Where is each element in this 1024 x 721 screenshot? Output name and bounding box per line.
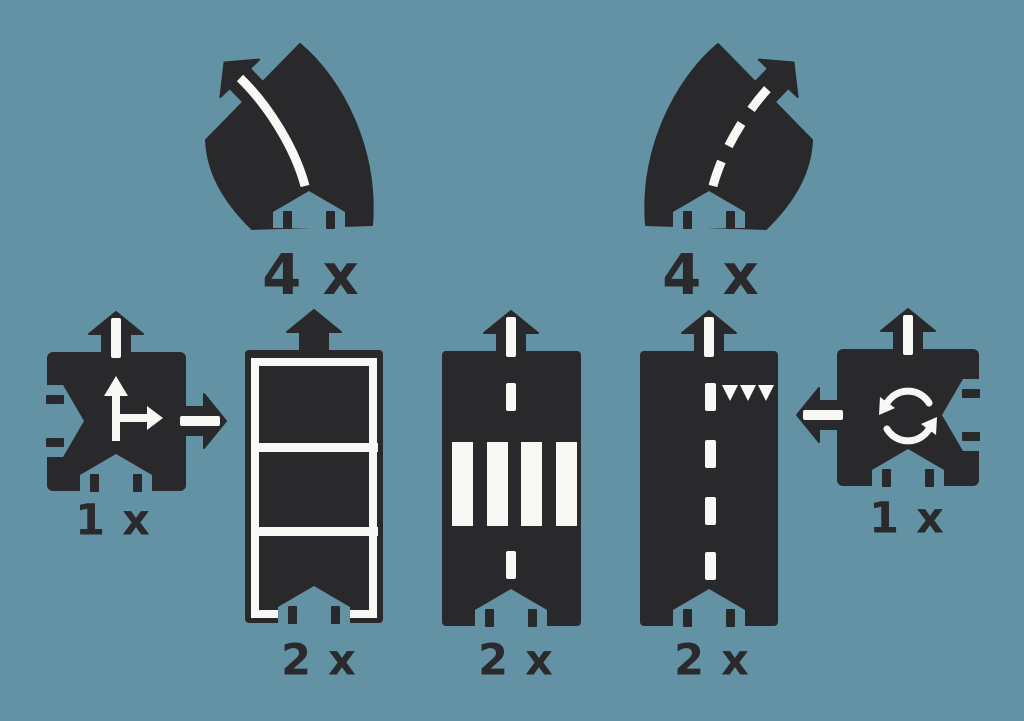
piece-count-label: 2 x: [478, 640, 554, 683]
piece-give-way-straight: [641, 311, 777, 626]
piece-count-label: 2 x: [674, 640, 750, 683]
tab-dash: [111, 318, 121, 358]
tab-dash: [506, 317, 516, 357]
piece-count-label: 4 x: [662, 248, 760, 304]
piece-count-label: 4 x: [262, 248, 360, 304]
piece-count-label: 2 x: [281, 640, 357, 683]
center-line-dash: [506, 383, 516, 411]
piece-count-label: 1 x: [75, 500, 151, 543]
road-pieces-graphic: [0, 0, 1024, 721]
road-parts-diagram: 4 x 4 x 1 x 2 x 2 x 2 x 1 x: [0, 0, 1024, 721]
give-way-triangles: [722, 385, 774, 401]
tab-dash: [803, 410, 843, 420]
piece-bridge-straight: [246, 310, 382, 623]
road-body: [246, 351, 382, 622]
center-line-dash: [506, 551, 516, 579]
tab-dash: [180, 416, 220, 426]
piece-pedestrian-crossing-straight: [443, 311, 580, 626]
piece-count-label: 1 x: [869, 498, 945, 541]
tab-dash: [704, 317, 714, 357]
tab-dash: [903, 315, 913, 355]
